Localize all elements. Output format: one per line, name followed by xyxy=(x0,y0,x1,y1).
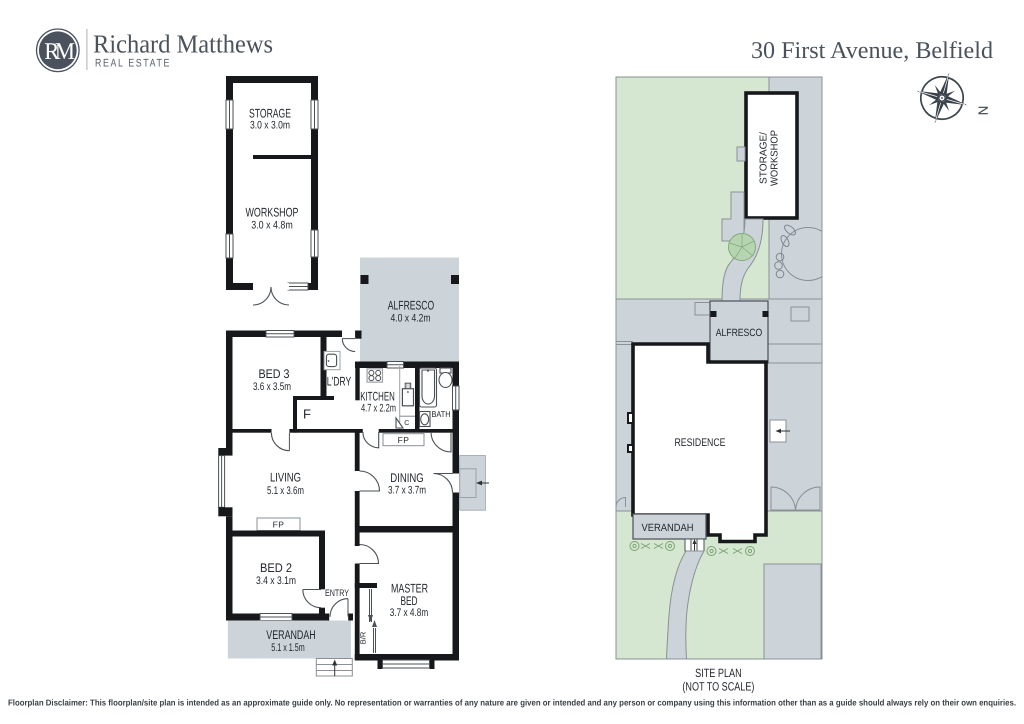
svg-text:RESIDENCE: RESIDENCE xyxy=(675,437,726,449)
svg-text:4.7 x 2.2m: 4.7 x 2.2m xyxy=(361,403,396,415)
svg-text:30 First Avenue, Belfield: 30 First Avenue, Belfield xyxy=(751,38,993,64)
svg-text:VERANDAH: VERANDAH xyxy=(642,522,694,534)
svg-text:5.1 x 1.5m: 5.1 x 1.5m xyxy=(271,642,305,654)
svg-text:BED 3: BED 3 xyxy=(259,367,290,381)
svg-text:C: C xyxy=(404,420,409,427)
svg-text:STORAGE: STORAGE xyxy=(249,107,291,121)
svg-text:VERANDAH: VERANDAH xyxy=(266,628,316,642)
svg-text:DINING: DINING xyxy=(390,471,424,485)
svg-text:BED 2: BED 2 xyxy=(260,561,292,575)
svg-text:3.7 x 4.8m: 3.7 x 4.8m xyxy=(390,607,429,619)
svg-text:L'DRY: L'DRY xyxy=(327,375,352,389)
svg-text:3.0 x 3.0m: 3.0 x 3.0m xyxy=(250,120,290,132)
svg-text:Floorplan Disclaimer: This flo: Floorplan Disclaimer: This floorplan/sit… xyxy=(8,698,1016,708)
svg-text:(NOT TO SCALE): (NOT TO SCALE) xyxy=(682,680,754,694)
svg-text:N: N xyxy=(976,106,991,116)
svg-text:WORKSHOP: WORKSHOP xyxy=(246,206,299,220)
svg-text:BED: BED xyxy=(401,594,418,608)
svg-text:ALFRESCO: ALFRESCO xyxy=(716,327,763,339)
svg-text:3.0 x 4.8m: 3.0 x 4.8m xyxy=(251,220,293,232)
svg-text:B/R: B/R xyxy=(359,631,368,644)
svg-text:5.1 x 3.6m: 5.1 x 3.6m xyxy=(267,485,304,497)
svg-text:BATH: BATH xyxy=(432,409,451,419)
svg-text:WORKSHOP: WORKSHOP xyxy=(770,130,781,186)
svg-text:Richard Matthews: Richard Matthews xyxy=(93,30,273,59)
svg-text:F: F xyxy=(303,407,311,422)
svg-text:RM: RM xyxy=(44,39,74,65)
svg-text:FP: FP xyxy=(273,520,285,530)
svg-text:LIVING: LIVING xyxy=(270,471,301,485)
svg-text:KITCHEN: KITCHEN xyxy=(360,390,395,404)
svg-text:REAL ESTATE: REAL ESTATE xyxy=(95,58,171,70)
svg-text:FP: FP xyxy=(398,435,410,445)
svg-text:3.7 x 3.7m: 3.7 x 3.7m xyxy=(388,485,426,497)
svg-text:4.0 x 4.2m: 4.0 x 4.2m xyxy=(391,313,431,325)
svg-text:3.4 x 3.1m: 3.4 x 3.1m xyxy=(256,575,296,587)
svg-text:3.6 x 3.5m: 3.6 x 3.5m xyxy=(253,381,291,393)
svg-text:ALFRESCO: ALFRESCO xyxy=(388,299,435,313)
svg-text:STORAGE/: STORAGE/ xyxy=(759,132,770,184)
svg-text:ENTRY: ENTRY xyxy=(325,588,349,599)
svg-text:SITE PLAN: SITE PLAN xyxy=(695,666,742,680)
